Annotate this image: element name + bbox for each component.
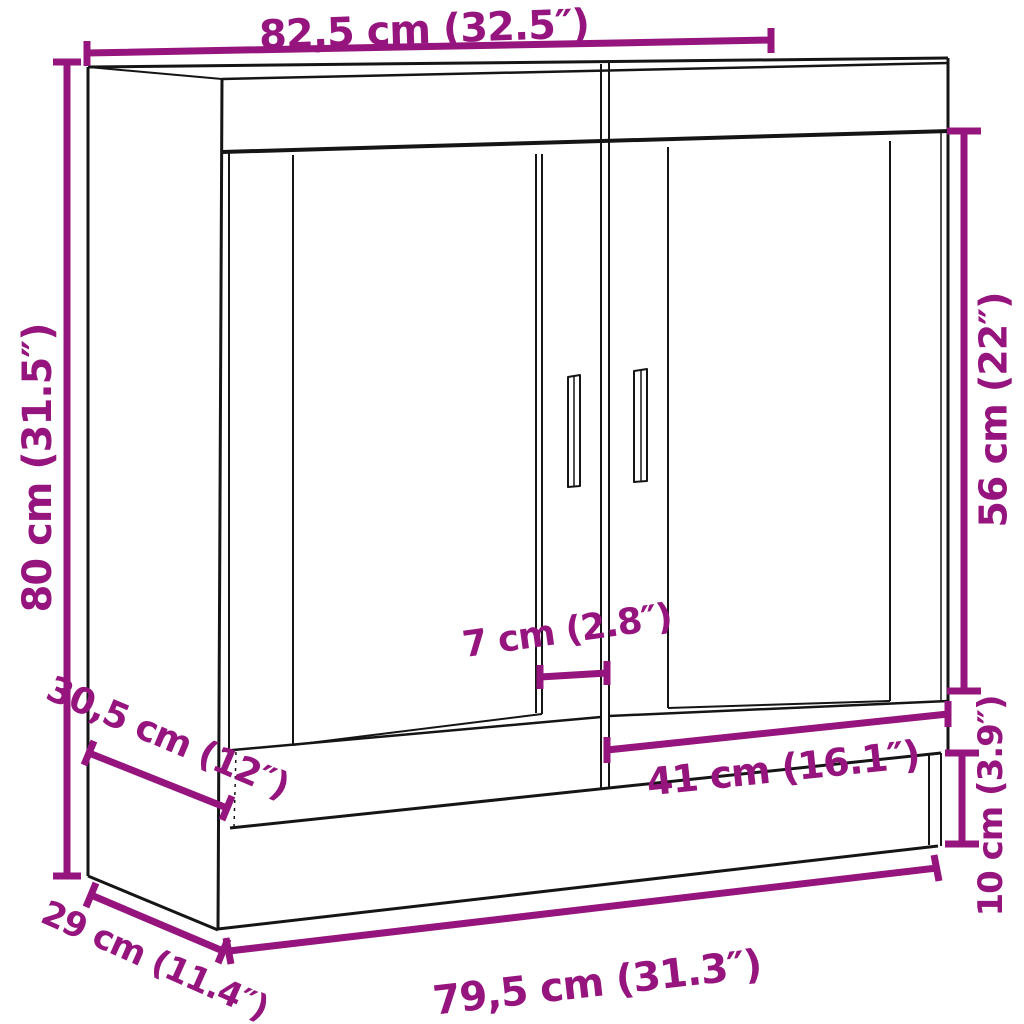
line-right-door-bottom <box>609 701 948 716</box>
dim-bottom-width <box>226 855 939 964</box>
dimension-lines <box>53 28 981 964</box>
cabinet-carcass <box>88 58 950 930</box>
cabinet-drawing <box>88 58 950 930</box>
dim-bottom-width-line <box>226 855 939 964</box>
line-left-pane-bottom <box>293 714 542 745</box>
label-top-width: 82,5 cm (32.5″) <box>258 1 589 58</box>
door-handles <box>568 369 647 487</box>
line-side-top-edge <box>88 67 222 79</box>
label-bottom-depth: 29 cm (11.4″) <box>35 893 274 1024</box>
label-height: 80 cm (31.5″) <box>15 323 61 612</box>
line-plinth-bottom-edge <box>218 846 938 929</box>
line-left-door-bottom <box>222 717 601 751</box>
label-center-stile-width: 7 cm (2.8″) <box>460 596 674 666</box>
dim-center-stile-width-line <box>540 661 607 689</box>
label-bottom-width: 79,5 cm (31.3″) <box>431 941 764 1024</box>
label-plinth-height: 10 cm (3.9″) <box>971 695 1011 916</box>
cabinet-doors <box>222 63 948 789</box>
dim-center-stile-width <box>540 661 607 689</box>
line-door-top-rail <box>222 131 950 152</box>
cabinet-dimension-diagram: 82,5 cm (32.5″) 80 cm (31.5″) 56 cm (22″… <box>0 0 1024 1024</box>
dimension-labels: 82,5 cm (32.5″) 80 cm (31.5″) 56 cm (22″… <box>15 1 1015 1024</box>
diagram-canvas: 82,5 cm (32.5″) 80 cm (31.5″) 56 cm (22″… <box>0 0 1024 1024</box>
label-door-glass-height: 56 cm (22″) <box>971 292 1015 527</box>
